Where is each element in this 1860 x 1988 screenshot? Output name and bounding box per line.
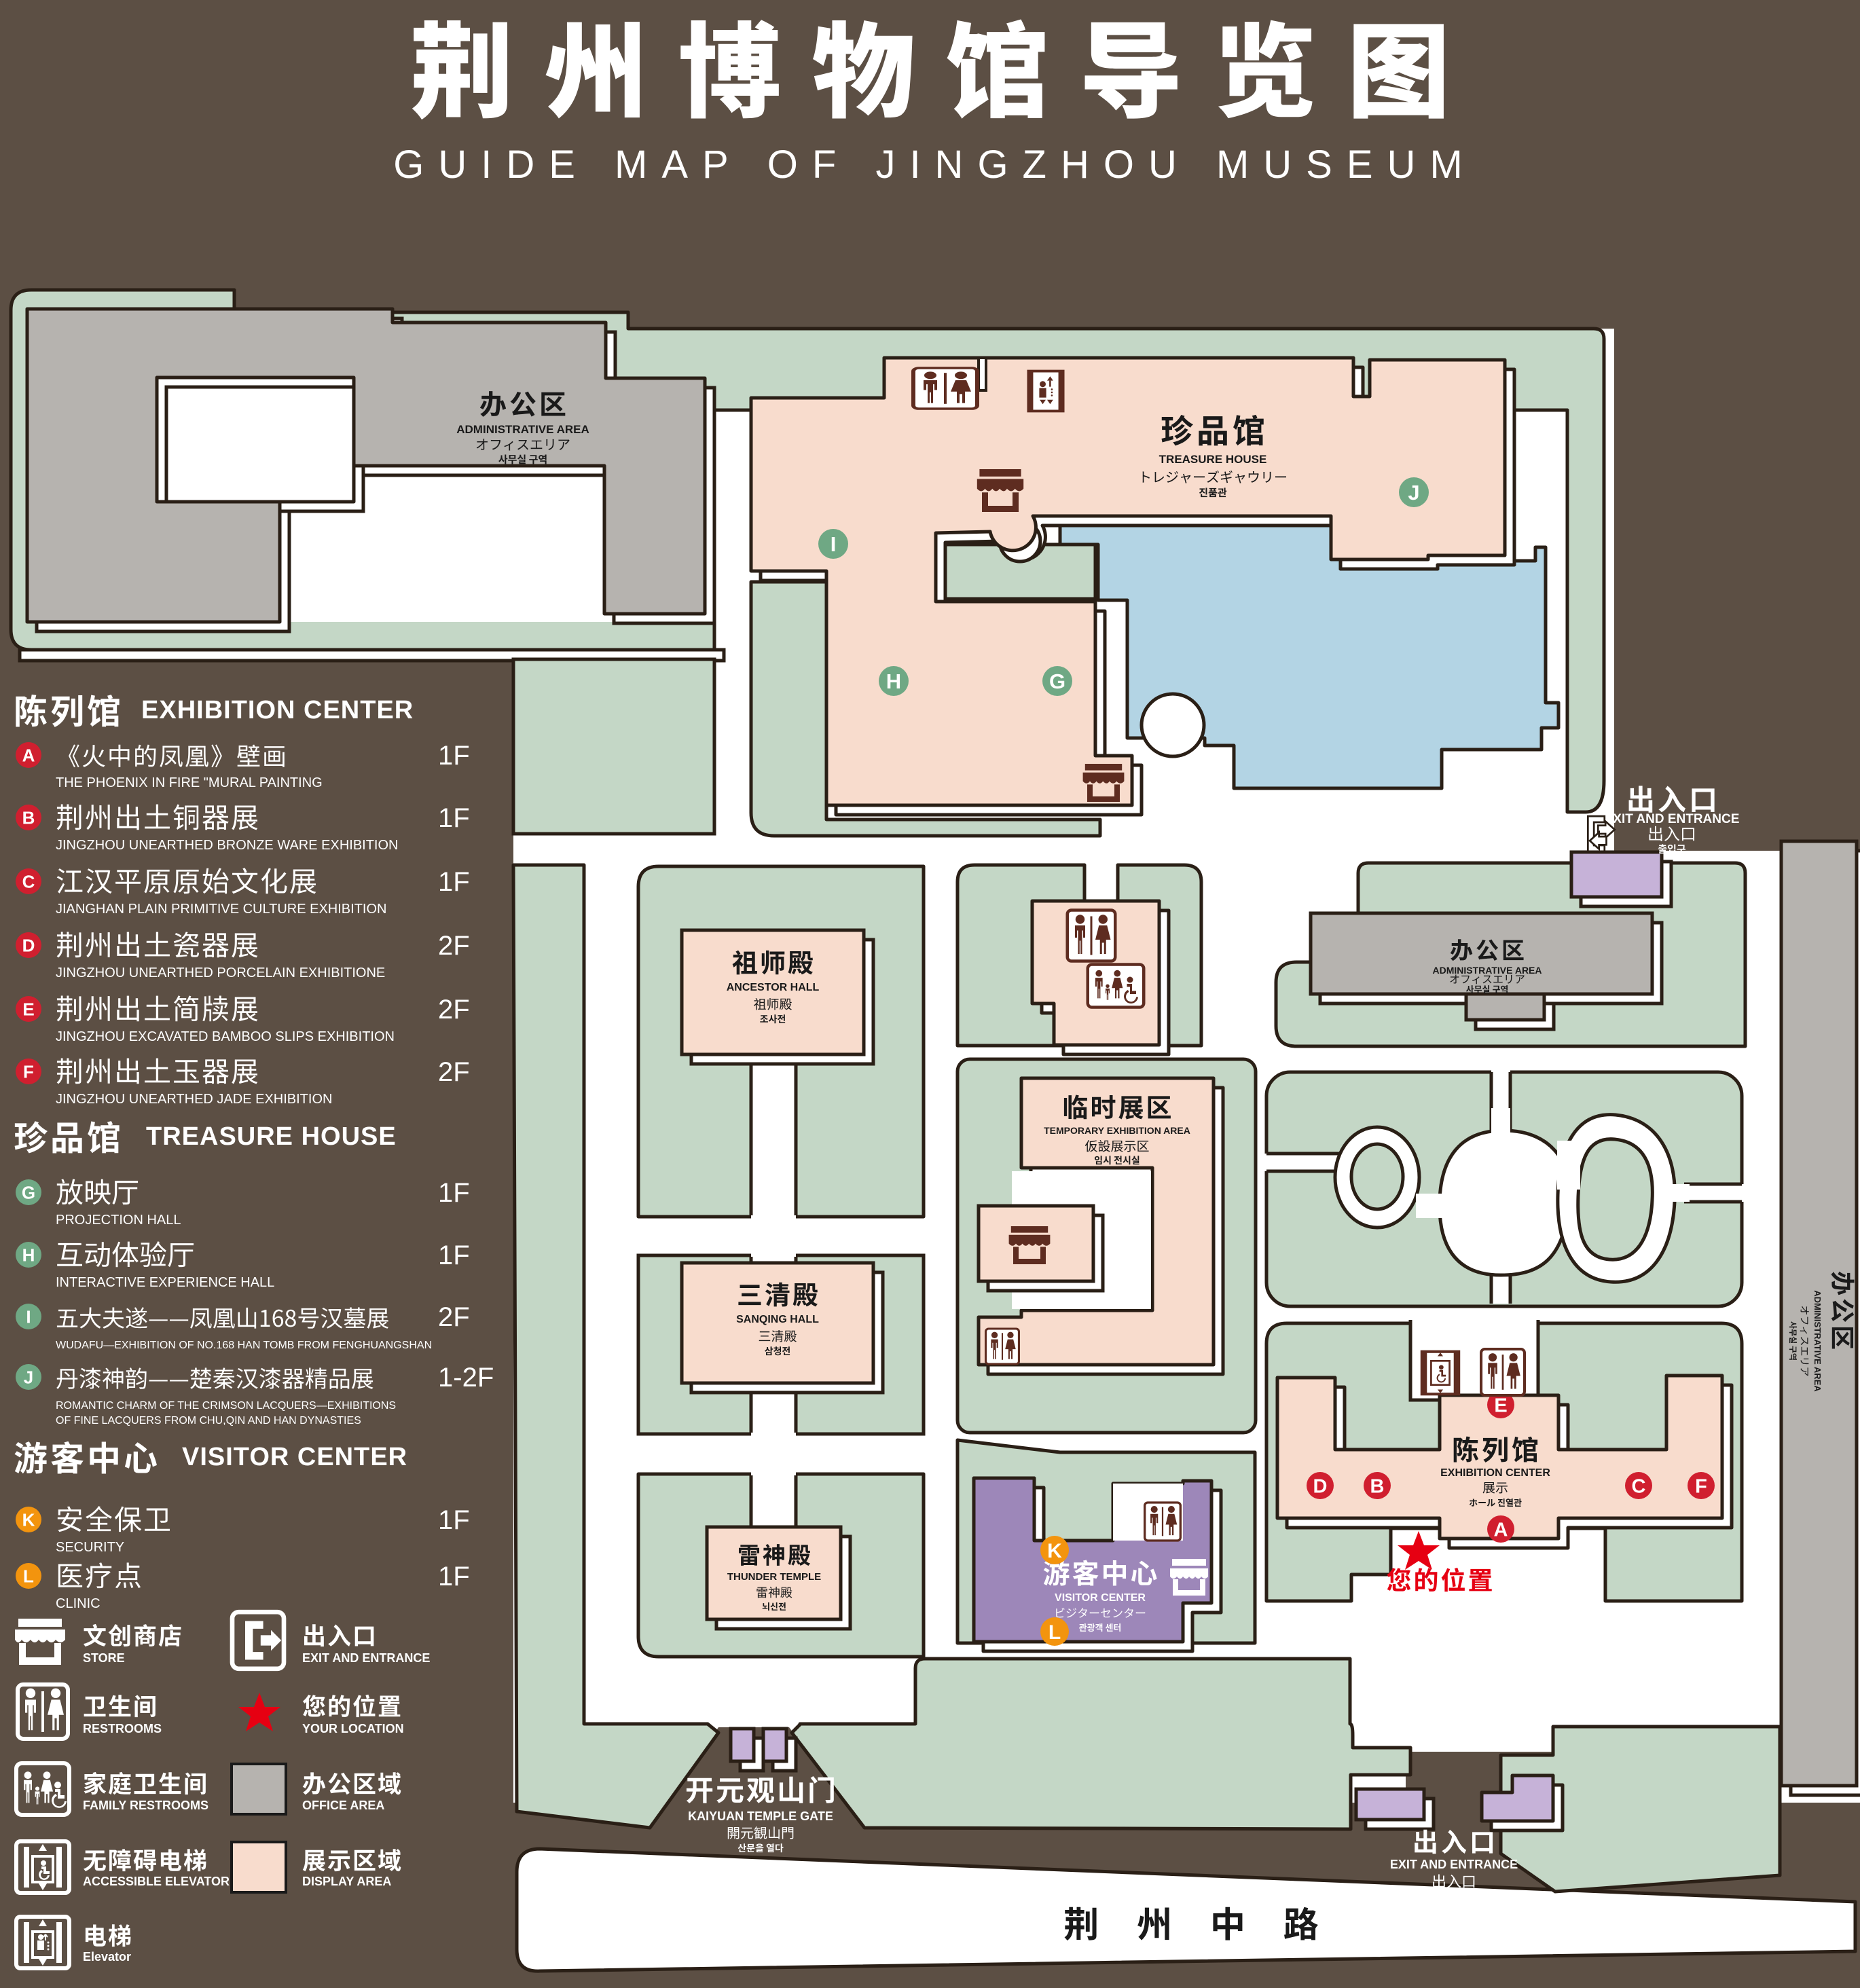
svg-text:F: F: [23, 1061, 34, 1082]
svg-text:B: B: [1370, 1475, 1385, 1497]
svg-text:ANCESTOR HALL: ANCESTOR HALL: [727, 982, 820, 993]
svg-text:INTERACTIVE EXPERIENCE HALL: INTERACTIVE EXPERIENCE HALL: [56, 1275, 274, 1290]
svg-text:VISITOR CENTER: VISITOR CENTER: [1055, 1592, 1146, 1604]
svg-text:1F: 1F: [438, 1562, 470, 1591]
svg-text:ACCESSIBLE ELEVATOR: ACCESSIBLE ELEVATOR: [83, 1875, 230, 1888]
svg-text:B: B: [22, 807, 35, 828]
svg-text:EXHIBITION CENTER: EXHIBITION CENTER: [1440, 1467, 1550, 1479]
svg-text:EXIT AND ENTRANCE: EXIT AND ENTRANCE: [1605, 812, 1740, 826]
svg-text:JINGZHOU UNEARTHED JADE EXHIBI: JINGZHOU UNEARTHED JADE EXHIBITION: [56, 1092, 332, 1107]
svg-text:EXHIBITION CENTER: EXHIBITION CENTER: [141, 696, 414, 724]
svg-text:K: K: [22, 1509, 35, 1530]
svg-text:1F: 1F: [438, 867, 470, 897]
svg-text:1F: 1F: [438, 1505, 470, 1535]
svg-text:H: H: [22, 1245, 35, 1265]
svg-text:G: G: [1049, 669, 1065, 693]
svg-text:CLINIC: CLINIC: [56, 1596, 101, 1611]
svg-text:K: K: [1047, 1540, 1062, 1562]
svg-text:C: C: [22, 871, 35, 891]
svg-text:STORE: STORE: [83, 1651, 125, 1665]
svg-text:YOUR LOCATION: YOUR LOCATION: [302, 1722, 404, 1735]
svg-text:TREASURE HOUSE: TREASURE HOUSE: [1159, 453, 1267, 466]
svg-text:ADMINISTRATIVE AREA: ADMINISTRATIVE AREA: [456, 423, 589, 436]
svg-text:RESTROOMS: RESTROOMS: [83, 1722, 162, 1735]
svg-text:2F: 2F: [438, 995, 470, 1025]
svg-text:1-2F: 1-2F: [438, 1363, 494, 1393]
svg-text:1F: 1F: [438, 741, 470, 771]
svg-text:C: C: [1632, 1475, 1646, 1497]
svg-text:FAMILY RESTROOMS: FAMILY RESTROOMS: [83, 1799, 208, 1812]
svg-text:A: A: [1494, 1519, 1508, 1541]
svg-text:GUIDE MAP OF JINGZHOU MUSEUM: GUIDE MAP OF JINGZHOU MUSEUM: [393, 143, 1477, 187]
svg-text:I: I: [26, 1306, 31, 1327]
svg-text:L: L: [1048, 1621, 1061, 1644]
svg-text:Elevator: Elevator: [83, 1950, 131, 1964]
svg-text:THE PHOENIX IN FIRE "MURAL PAI: THE PHOENIX IN FIRE "MURAL PAINTING: [56, 775, 323, 790]
svg-text:SECURITY: SECURITY: [56, 1540, 124, 1555]
svg-text:EXIT AND ENTRANCE: EXIT AND ENTRANCE: [1390, 1858, 1518, 1871]
svg-text:1F: 1F: [438, 1178, 470, 1208]
svg-text:L: L: [23, 1566, 34, 1586]
svg-text:TEMPORARY EXHIBITION AREA: TEMPORARY EXHIBITION AREA: [1044, 1125, 1190, 1136]
svg-text:OFFICE AREA: OFFICE AREA: [302, 1799, 384, 1812]
svg-text:JINGZHOU UNEARTHED PORCELAIN E: JINGZHOU UNEARTHED PORCELAIN EXHIBITIONE: [56, 965, 385, 980]
svg-text:2F: 2F: [438, 1302, 470, 1332]
svg-text:KAIYUAN TEMPLE GATE: KAIYUAN TEMPLE GATE: [688, 1809, 833, 1823]
svg-text:1F: 1F: [438, 1240, 470, 1270]
svg-text:VISITOR CENTER: VISITOR CENTER: [182, 1443, 407, 1471]
svg-text:E: E: [1494, 1395, 1507, 1416]
svg-text:ADMINISTRATIVE AREA: ADMINISTRATIVE AREA: [1433, 965, 1542, 976]
svg-text:D: D: [1313, 1475, 1328, 1497]
svg-text:J: J: [1408, 481, 1419, 504]
svg-text:D: D: [22, 935, 35, 955]
svg-text:J: J: [24, 1367, 33, 1387]
svg-text:OF FINE LACQUERS FROM CHU,QIN: OF FINE LACQUERS FROM CHU,QIN AND HAN DY…: [56, 1415, 361, 1426]
svg-text:F: F: [1695, 1475, 1707, 1497]
svg-text:2F: 2F: [438, 931, 470, 961]
svg-text:H: H: [886, 669, 901, 693]
svg-text:EXIT AND ENTRANCE: EXIT AND ENTRANCE: [302, 1651, 430, 1665]
svg-text:SANQING HALL: SANQING HALL: [736, 1314, 819, 1325]
svg-text:A: A: [22, 745, 35, 765]
svg-text:THUNDER TEMPLE: THUNDER TEMPLE: [727, 1571, 821, 1583]
svg-text:JINGZHOU EXCAVATED BAMBOO SLIP: JINGZHOU EXCAVATED BAMBOO SLIPS EXHIBITI…: [56, 1029, 395, 1044]
svg-text:2F: 2F: [438, 1057, 470, 1087]
svg-text:TREASURE HOUSE: TREASURE HOUSE: [146, 1122, 397, 1151]
svg-text:ADMINISTRATIVE AREA: ADMINISTRATIVE AREA: [1812, 1290, 1823, 1392]
svg-text:1F: 1F: [438, 803, 470, 833]
svg-text:ROMANTIC CHARM OF THE CRIMSON: ROMANTIC CHARM OF THE CRIMSON LACQUERS—E…: [56, 1400, 396, 1412]
svg-text:WUDAFU—EXHIBITION OF NO.168 HA: WUDAFU—EXHIBITION OF NO.168 HAN TOMB FRO…: [56, 1340, 432, 1351]
svg-text:I: I: [831, 532, 837, 556]
svg-text:JINGZHOU UNEARTHED BRONZE WARE: JINGZHOU UNEARTHED BRONZE WARE EXHIBITIO…: [56, 838, 398, 853]
svg-text:JIANGHAN PLAIN PRIMITIVE CULTU: JIANGHAN PLAIN PRIMITIVE CULTURE EXHIBIT…: [56, 902, 386, 917]
svg-text:E: E: [22, 999, 34, 1019]
svg-text:DISPLAY AREA: DISPLAY AREA: [302, 1875, 391, 1888]
svg-text:G: G: [22, 1182, 35, 1202]
svg-text:PROJECTION HALL: PROJECTION HALL: [56, 1213, 181, 1228]
